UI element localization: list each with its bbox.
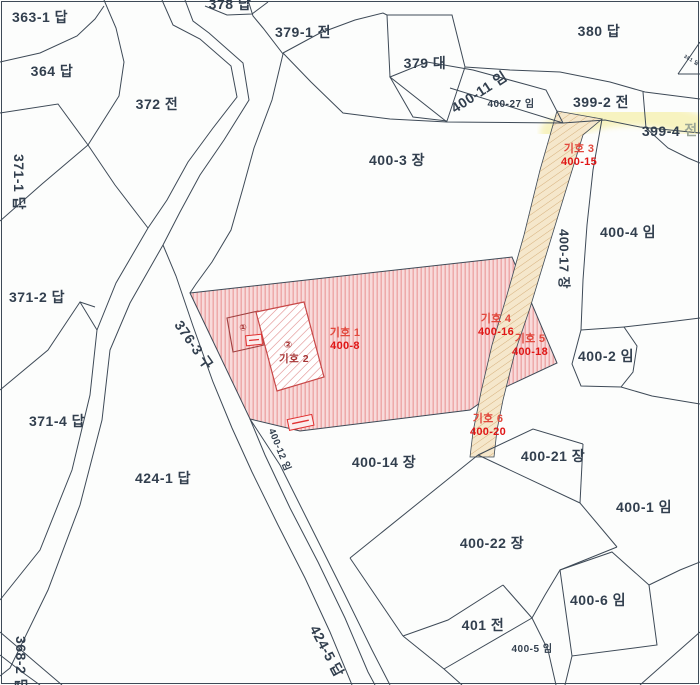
cadastral-map: 363-1 답364 답372 전371-1 답371-2 답371-4 답42…	[0, 0, 700, 685]
map-canvas	[0, 0, 700, 685]
tiny-red-box-1	[246, 334, 263, 346]
